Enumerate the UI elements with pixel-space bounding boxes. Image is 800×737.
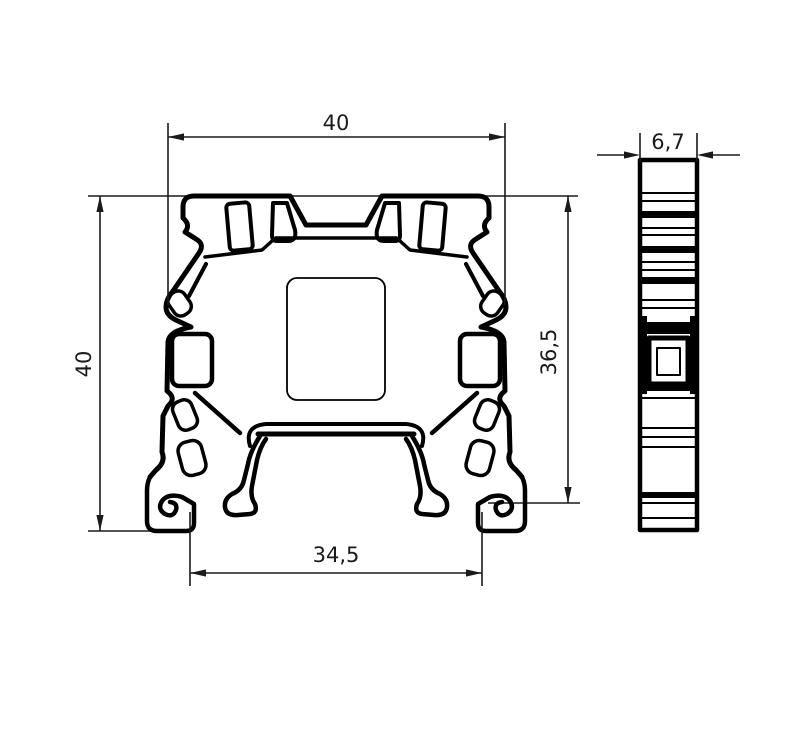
arrowhead-right xyxy=(466,569,482,576)
arrowhead-up xyxy=(564,196,571,212)
arrowhead-left xyxy=(168,133,184,140)
profile-right-half xyxy=(377,196,525,531)
technical-drawing-page: 40 40 36,5 34,5 6,7 xyxy=(0,0,800,737)
cutout-lower xyxy=(176,438,208,477)
top-center-dip xyxy=(290,196,382,225)
dimension-side-width: 6,7 xyxy=(597,130,740,162)
profile-left-half xyxy=(147,196,295,531)
mounting-hole xyxy=(172,334,212,386)
front-view xyxy=(88,196,580,531)
inner-wall-diagonal xyxy=(189,264,206,296)
leg-foot xyxy=(225,436,266,515)
wire-clamp-slot-outer xyxy=(226,202,253,251)
side-window-inner xyxy=(657,348,680,375)
dimension-label: 34,5 xyxy=(313,543,360,567)
under-ear-line xyxy=(205,238,276,257)
side-band xyxy=(641,246,696,253)
dimension-front-width: 40 xyxy=(168,111,505,305)
marking-field xyxy=(287,278,385,400)
drawing-canvas: 40 40 36,5 34,5 6,7 xyxy=(0,0,800,737)
dimension-front-height-right: 36,5 xyxy=(537,196,572,503)
dimension-label: 6,7 xyxy=(651,130,684,154)
dimension-label: 40 xyxy=(323,111,350,135)
dimension-label: 36,5 xyxy=(537,329,561,376)
din-hook xyxy=(147,477,194,531)
side-view xyxy=(638,160,699,530)
dimension-rail-slot: 34,5 xyxy=(190,512,482,586)
arrowhead-right xyxy=(489,133,505,140)
side-edge-thick-right xyxy=(690,316,699,394)
side-band xyxy=(641,322,696,334)
dimension-front-height: 40 xyxy=(72,196,104,531)
arrowhead-up xyxy=(96,196,103,212)
side-band xyxy=(641,211,696,218)
wire-clamp-slot-inner xyxy=(272,203,295,241)
arrowhead-left xyxy=(624,151,640,158)
side-edge-thick-left xyxy=(638,316,647,394)
arrowhead-down xyxy=(564,487,571,503)
side-band xyxy=(641,277,696,284)
leg-strut xyxy=(195,393,240,433)
arrowhead-left xyxy=(190,569,206,576)
dimension-label: 40 xyxy=(72,351,96,378)
arrowhead-down xyxy=(96,515,103,531)
cutout-middle xyxy=(170,397,200,432)
side-band xyxy=(641,492,696,498)
arrowhead-right xyxy=(697,151,713,158)
